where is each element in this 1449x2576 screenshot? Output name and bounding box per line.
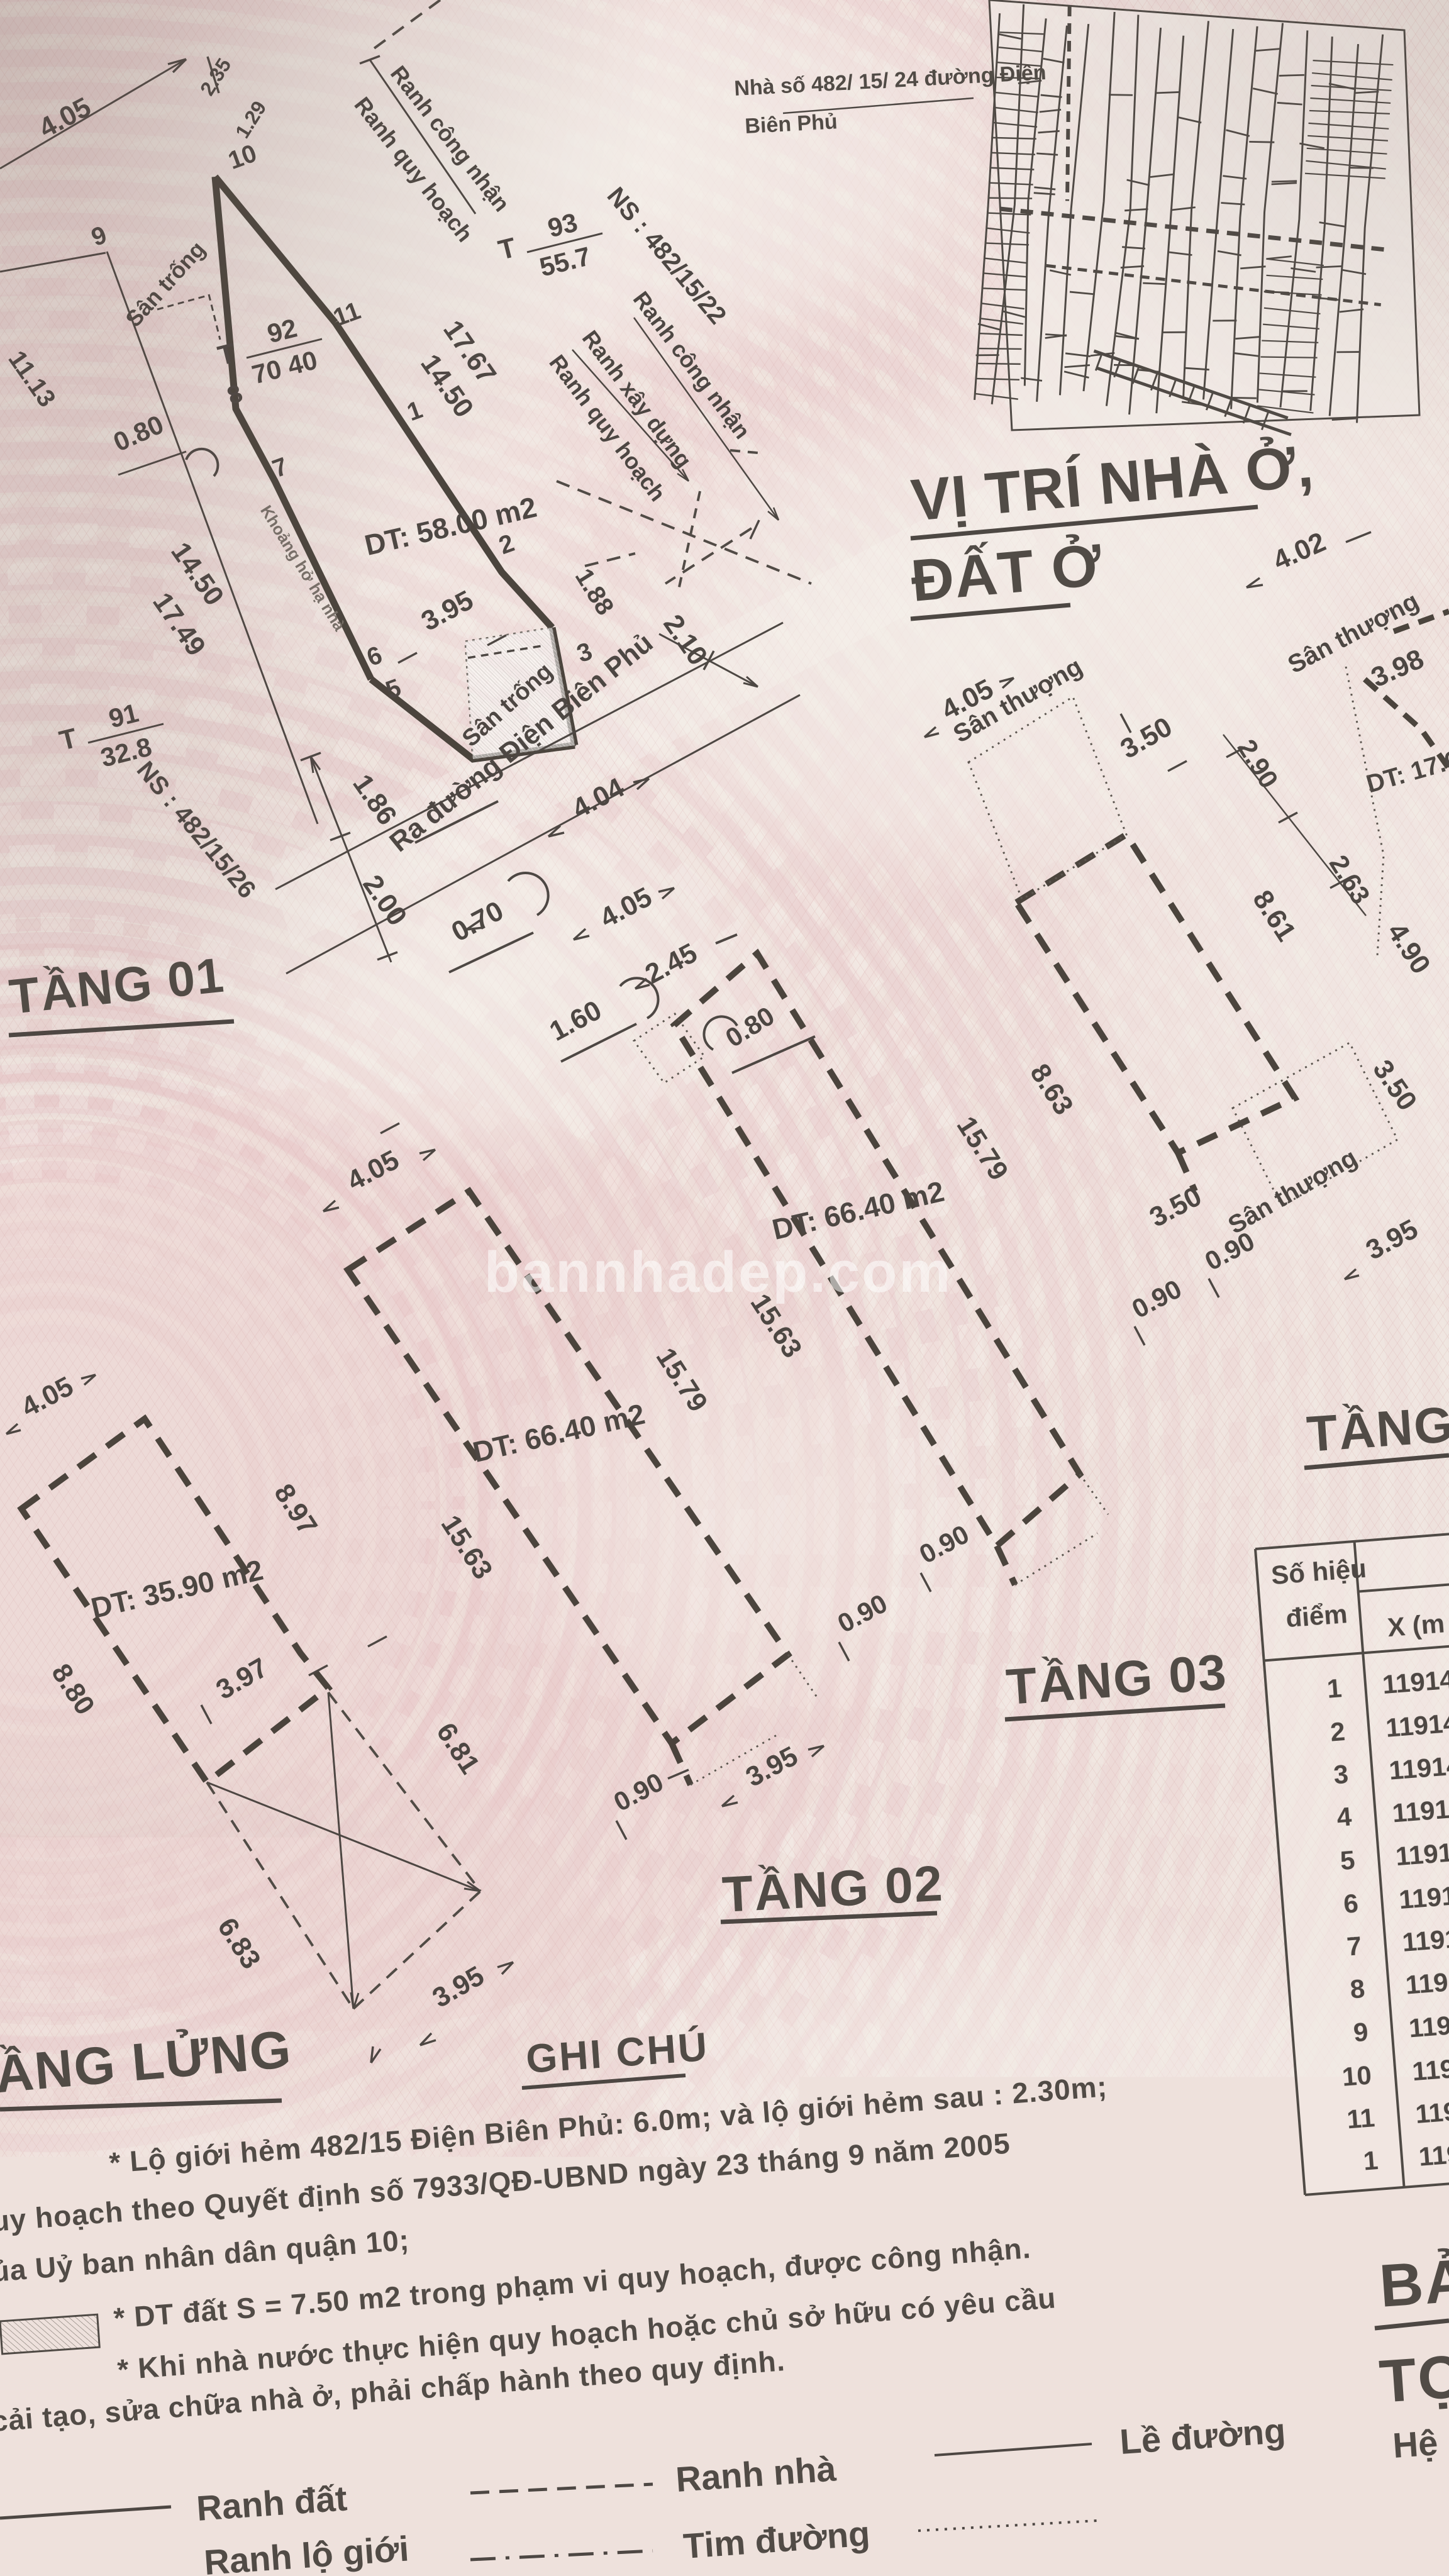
svg-text:bannhadep.com: bannhadep.com [865, 2462, 1386, 2538]
svg-text:bannhadep.com: bannhadep.com [484, 1240, 952, 1304]
